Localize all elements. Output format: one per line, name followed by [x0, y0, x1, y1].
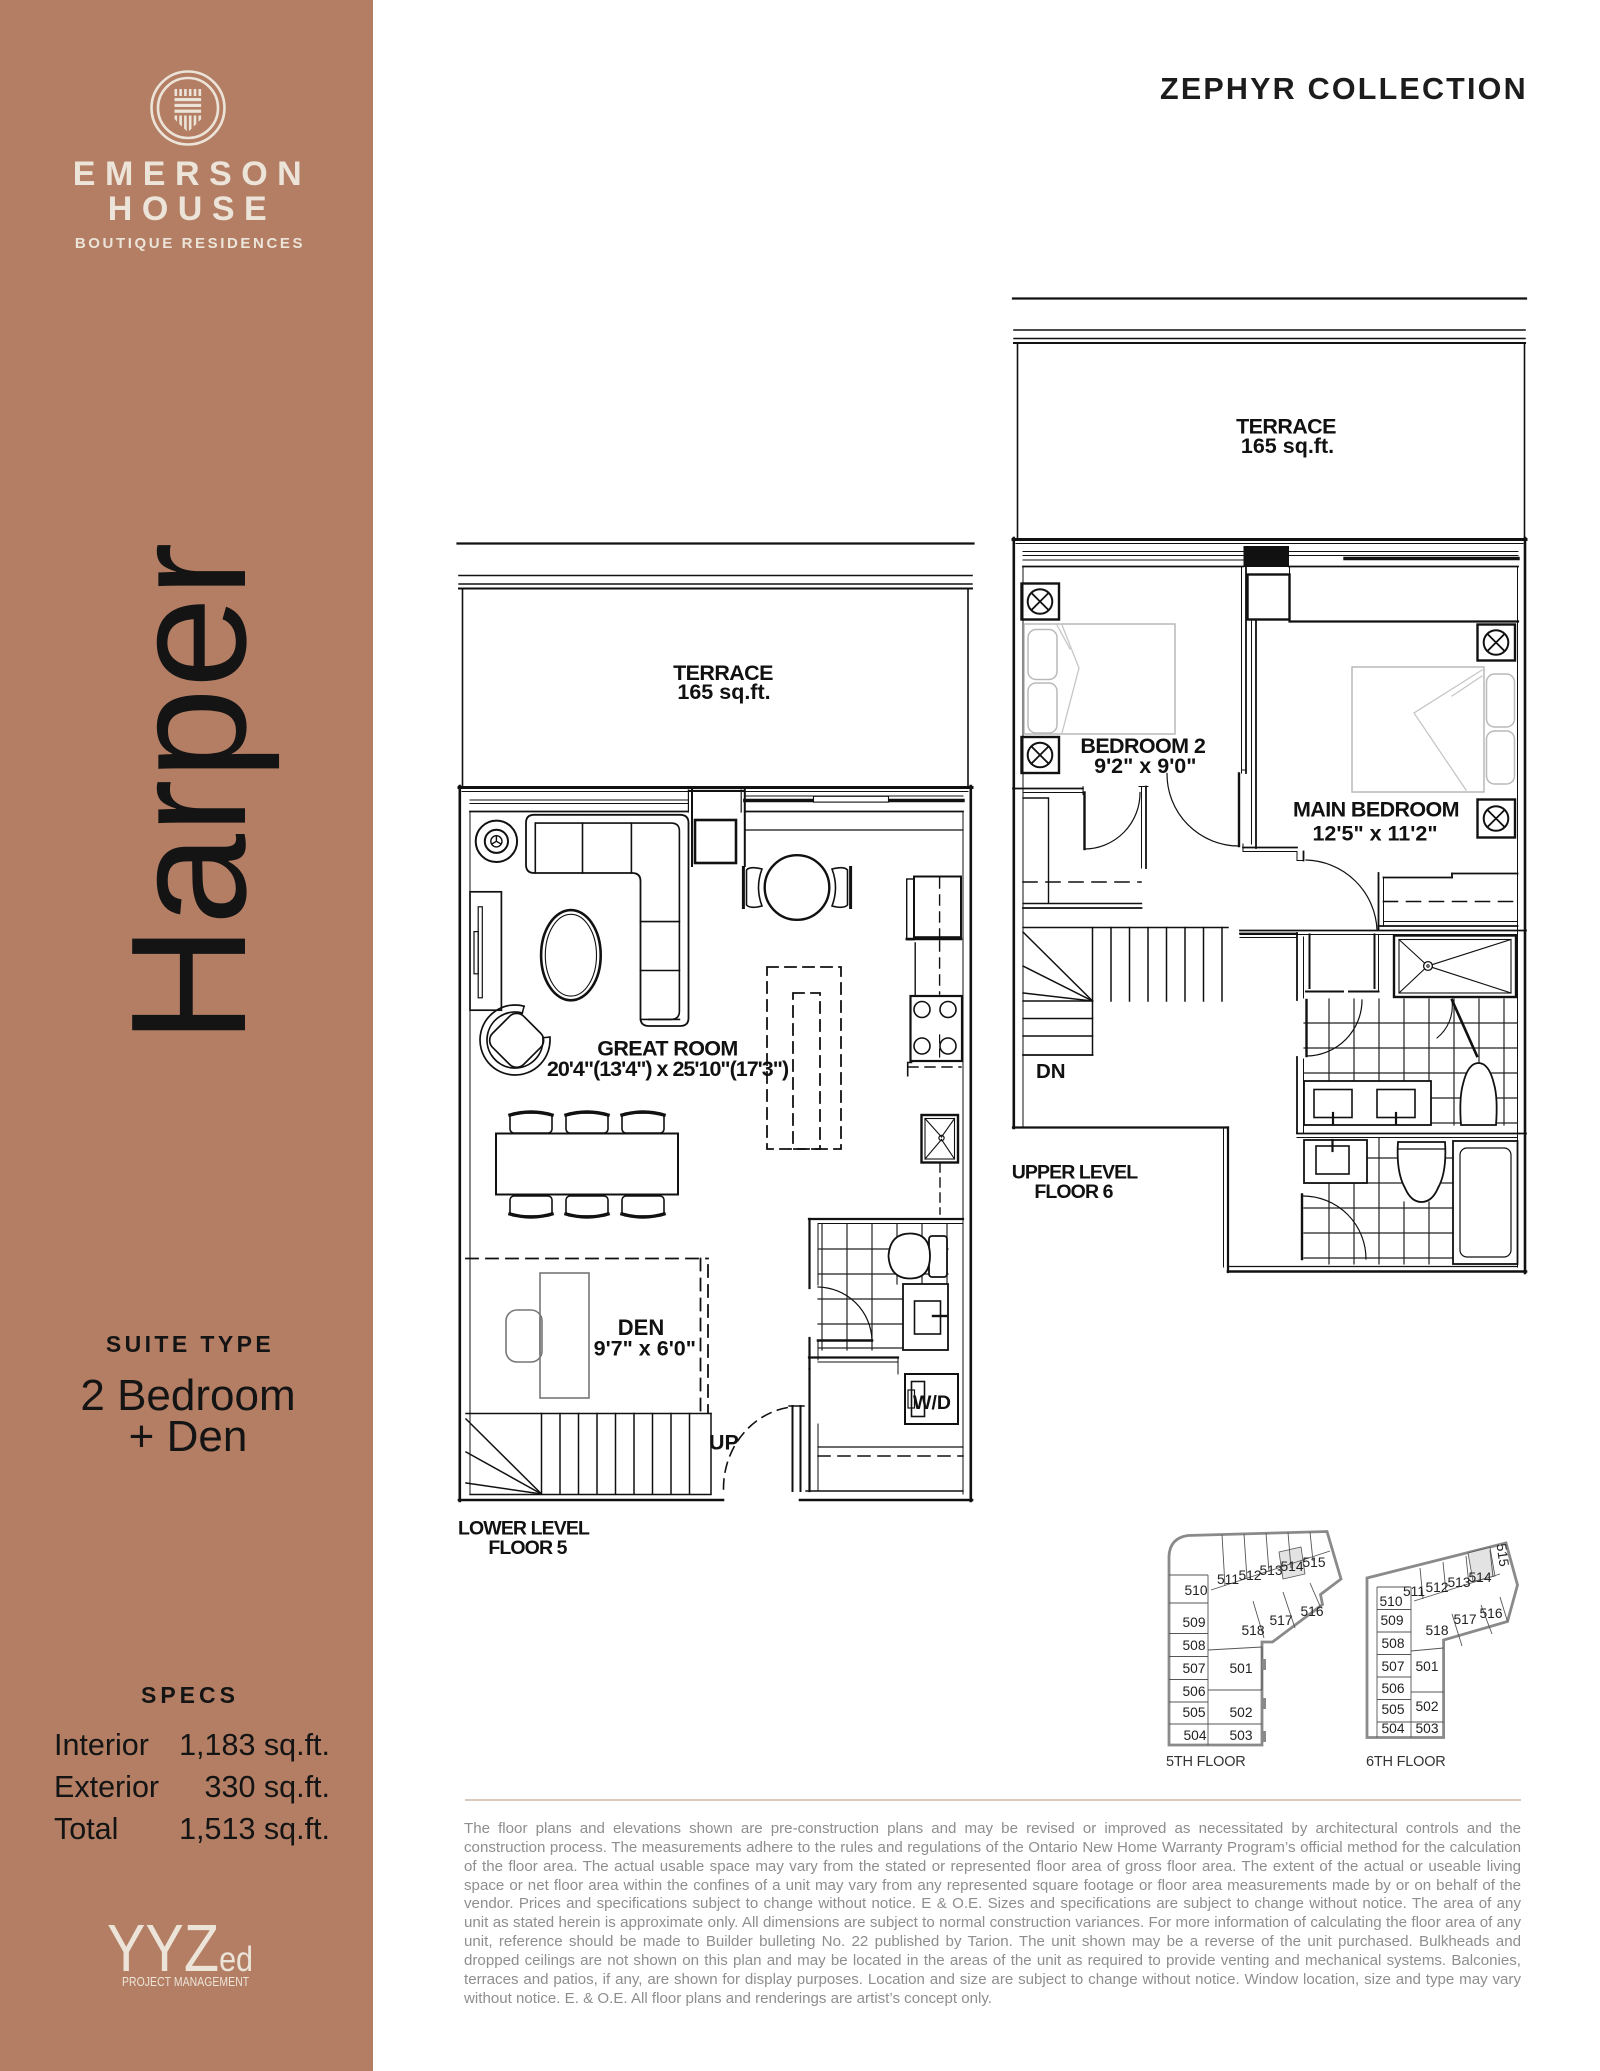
svg-text:DN: DN — [1036, 1060, 1066, 1083]
svg-text:512: 512 — [1425, 1580, 1448, 1595]
svg-text:506: 506 — [1182, 1684, 1205, 1699]
svg-text:505: 505 — [1182, 1705, 1205, 1720]
svg-text:W/D: W/D — [913, 1392, 951, 1414]
svg-text:501: 501 — [1415, 1659, 1438, 1674]
svg-text:504: 504 — [1183, 1728, 1206, 1743]
svg-text:504: 504 — [1381, 1721, 1404, 1736]
svg-text:509: 509 — [1182, 1615, 1205, 1630]
svg-text:517: 517 — [1453, 1612, 1476, 1627]
svg-text:511: 511 — [1217, 1572, 1239, 1587]
svg-text:5TH FLOOR: 5TH FLOOR — [1166, 1754, 1246, 1770]
svg-text:512: 512 — [1238, 1568, 1261, 1583]
svg-text:20'4"(13'4") x 25'10"(17'3"): 20'4"(13'4") x 25'10"(17'3") — [547, 1057, 789, 1081]
svg-text:FLOOR 5: FLOOR 5 — [488, 1537, 567, 1559]
svg-text:MAIN BEDROOM: MAIN BEDROOM — [1293, 798, 1459, 822]
svg-text:516: 516 — [1300, 1604, 1323, 1619]
svg-text:507: 507 — [1182, 1661, 1205, 1676]
svg-text:165 sq.ft.: 165 sq.ft. — [1241, 434, 1334, 458]
svg-text:502: 502 — [1415, 1699, 1438, 1714]
svg-text:511: 511 — [1403, 1584, 1425, 1599]
svg-text:518: 518 — [1241, 1623, 1264, 1638]
svg-text:513: 513 — [1447, 1575, 1470, 1590]
svg-text:515: 515 — [1302, 1555, 1325, 1570]
svg-text:506: 506 — [1381, 1681, 1404, 1696]
svg-text:515: 515 — [1493, 1543, 1511, 1568]
svg-text:6TH FLOOR: 6TH FLOOR — [1366, 1754, 1446, 1770]
svg-text:518: 518 — [1425, 1623, 1448, 1638]
svg-text:501: 501 — [1229, 1661, 1252, 1676]
svg-text:517: 517 — [1269, 1613, 1292, 1628]
svg-text:510: 510 — [1184, 1583, 1207, 1598]
svg-text:505: 505 — [1381, 1702, 1404, 1717]
svg-text:165 sq.ft.: 165 sq.ft. — [677, 680, 770, 704]
svg-text:516: 516 — [1479, 1606, 1502, 1621]
svg-text:514: 514 — [1468, 1570, 1491, 1585]
svg-text:9'7" x 6'0": 9'7" x 6'0" — [594, 1337, 696, 1361]
svg-text:514: 514 — [1280, 1559, 1303, 1574]
svg-text:502: 502 — [1229, 1705, 1252, 1720]
svg-text:508: 508 — [1182, 1638, 1205, 1653]
svg-text:Harper: Harper — [97, 542, 280, 1043]
svg-text:507: 507 — [1381, 1659, 1404, 1674]
svg-text:FLOOR 6: FLOOR 6 — [1034, 1181, 1113, 1203]
svg-text:513: 513 — [1259, 1563, 1282, 1578]
svg-text:UPPER LEVEL: UPPER LEVEL — [1012, 1161, 1139, 1183]
svg-text:508: 508 — [1381, 1636, 1404, 1651]
svg-text:12'5" x 11'2": 12'5" x 11'2" — [1312, 822, 1437, 846]
svg-text:510: 510 — [1379, 1594, 1402, 1609]
svg-text:503: 503 — [1415, 1721, 1438, 1736]
svg-text:509: 509 — [1380, 1613, 1403, 1628]
svg-text:9'2" x 9'0": 9'2" x 9'0" — [1094, 754, 1196, 778]
svg-text:503: 503 — [1229, 1728, 1252, 1743]
svg-text:UP: UP — [709, 1431, 739, 1455]
